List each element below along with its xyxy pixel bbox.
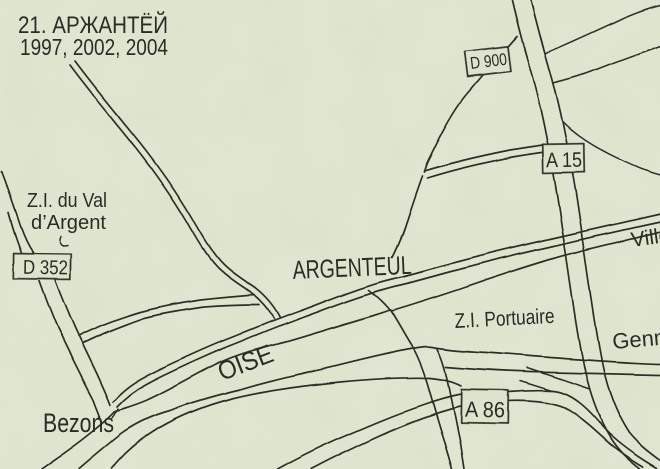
svg-text:d’Argent: d’Argent [31,212,106,234]
svg-text:Bezons: Bezons [43,408,114,438]
svg-text:A 86: A 86 [465,397,505,423]
svg-text:A 15: A 15 [546,149,582,173]
svg-text:ARGENTEUL: ARGENTEUL [292,250,412,285]
svg-text:1997, 2002, 2004: 1997, 2002, 2004 [20,34,168,60]
svg-text:Z.I. du Val: Z.I. du Val [27,190,107,212]
svg-text:D 352: D 352 [23,257,68,280]
